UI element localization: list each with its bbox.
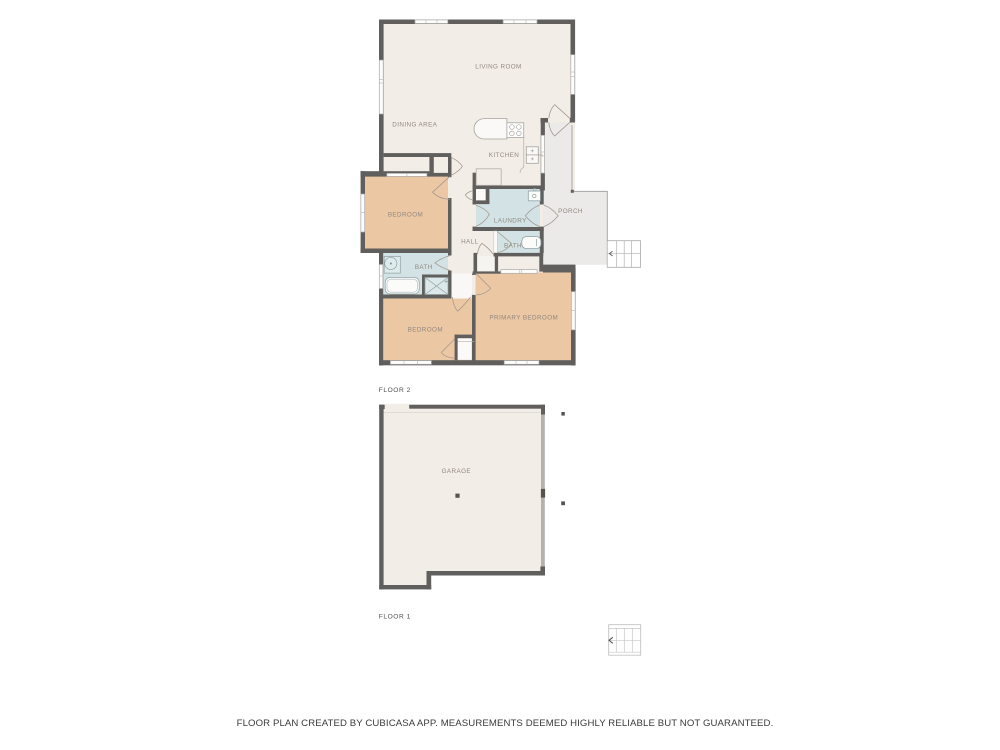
svg-text:KITCHEN: KITCHEN	[489, 152, 519, 159]
svg-text:LIVING ROOM: LIVING ROOM	[475, 64, 521, 71]
svg-text:GARAGE: GARAGE	[442, 468, 471, 475]
svg-text:BATH: BATH	[504, 242, 522, 249]
svg-text:BATH: BATH	[415, 264, 433, 271]
svg-text:PRIMARY BEDROOM: PRIMARY BEDROOM	[489, 314, 558, 321]
svg-text:LAUNDRY: LAUNDRY	[494, 217, 527, 224]
svg-text:PORCH: PORCH	[558, 208, 583, 215]
svg-text:BEDROOM: BEDROOM	[408, 326, 443, 333]
svg-text:FLOOR PLAN CREATED BY CUBICASA: FLOOR PLAN CREATED BY CUBICASA APP. MEAS…	[237, 718, 774, 729]
svg-text:DINING AREA: DINING AREA	[392, 122, 437, 129]
svg-text:HALL: HALL	[461, 238, 478, 245]
svg-text:FLOOR 1: FLOOR 1	[379, 613, 411, 620]
svg-text:BEDROOM: BEDROOM	[388, 212, 423, 219]
svg-text:FLOOR 2: FLOOR 2	[379, 387, 411, 394]
